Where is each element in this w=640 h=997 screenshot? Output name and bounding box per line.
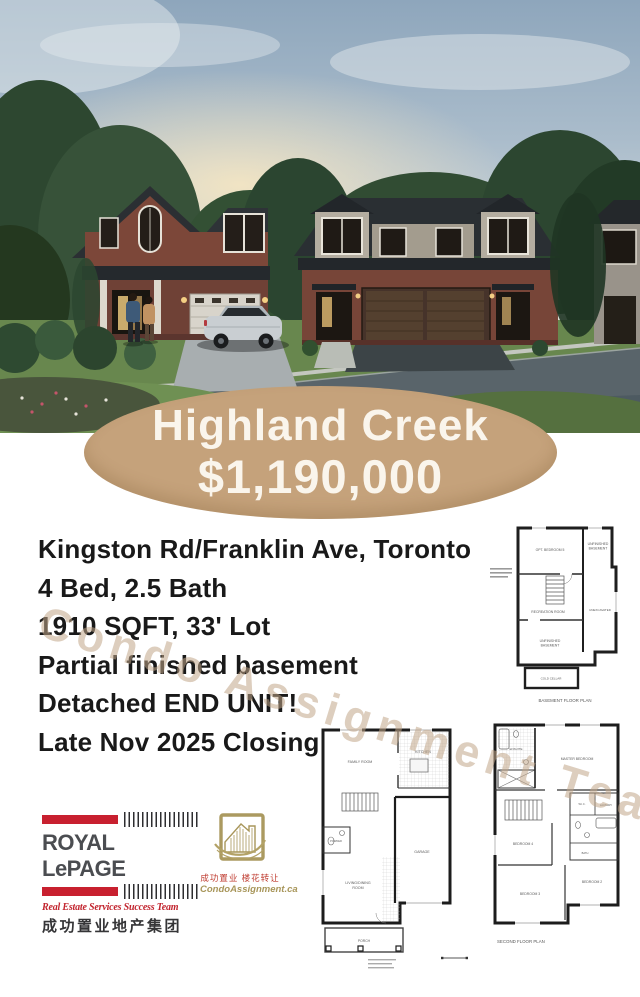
room-label: MASTER BEDROOM <box>561 757 594 761</box>
detail-line-beds-baths: 4 Bed, 2.5 Bath <box>38 569 471 608</box>
listing-price: $1,190,000 <box>198 452 443 503</box>
ground-floor-plan: FAMILY ROOM KITCHEN GARAGE LIVING/DINING… <box>320 715 472 997</box>
room-label: UNEXCAVATED <box>589 608 612 612</box>
second-caption: SECOND FLOOR PLAN <box>497 939 545 944</box>
room-label: RECREATION ROOM <box>531 610 565 614</box>
second-floor-plan: ENSUITE MASTER BEDROOM W.I.C. LAUNDRY BA… <box>485 715 640 960</box>
room-label: LIVING/DINING <box>345 881 371 885</box>
room-label: COLD CELLAR <box>541 677 563 681</box>
community-name: Highland Creek <box>152 402 489 450</box>
room-label: BEDROOM 3 <box>520 892 540 896</box>
ca-website: CondoAssignment.ca <box>200 884 280 895</box>
room-label: UNFINISHED <box>588 542 609 546</box>
room-label: BASEMENT <box>541 644 560 648</box>
rlp-stripe-pattern <box>124 884 198 899</box>
detail-line-address: Kingston Rd/Franklin Ave, Toronto <box>38 530 471 569</box>
rlp-chinese-name: 成功置业地产集团 <box>42 915 202 936</box>
room-label: POWDER <box>330 839 342 843</box>
room-label: FAMILY ROOM <box>348 760 373 764</box>
hero-photo <box>0 0 640 433</box>
room-label: ENSUITE <box>509 747 522 751</box>
room-label: ROOM <box>352 886 363 890</box>
house-right <box>294 194 560 368</box>
room-label: UNFINISHED <box>540 639 561 643</box>
detail-line-sqft-lot: 1910 SQFT, 33' Lot <box>38 607 471 646</box>
rlp-wordmark: ROYAL LePAGE <box>42 830 202 882</box>
room-label: BATH <box>582 851 589 855</box>
royal-lepage-logo: ROYAL LePAGE Real Estate Services Succes… <box>42 812 202 936</box>
real-estate-flyer: Highland Creek $1,190,000 Kingston Rd/Fr… <box>0 0 640 997</box>
room-label: W.I.C. <box>578 802 585 806</box>
basement-floor-plan: OPT. BEDROOM 5 UNFINISHED BASEMENT RECRE… <box>488 512 640 712</box>
room-label: BEDROOM 2 <box>582 880 602 884</box>
rlp-stripe-pattern <box>124 812 198 827</box>
room-label: BASEMENT <box>589 547 608 551</box>
room-label: LAUNDRY <box>600 803 613 807</box>
condoassignment-logo: 成功置业 楼花转让 CondoAssignment.ca <box>200 812 280 895</box>
room-label: KITCHEN <box>415 750 431 754</box>
rlp-red-bar <box>42 887 118 896</box>
room-label: GARAGE <box>414 850 430 854</box>
rlp-tagline: Real Estate Services Success Team <box>42 902 202 913</box>
room-label: BEDROOM 4 <box>513 842 533 846</box>
basement-caption: BASEMENT FLOOR PLAN <box>538 698 591 703</box>
room-label: PORCH <box>358 939 371 943</box>
detail-line-basement: Partial finished basement <box>38 646 471 685</box>
house-edge <box>550 193 640 344</box>
room-label: OPT. BEDROOM 5 <box>536 548 565 552</box>
price-badge: Highland Creek $1,190,000 <box>84 386 557 519</box>
building-icon <box>211 812 269 866</box>
ca-chinese-line: 成功置业 楼花转让 <box>200 872 280 884</box>
rlp-red-bar <box>42 815 118 824</box>
